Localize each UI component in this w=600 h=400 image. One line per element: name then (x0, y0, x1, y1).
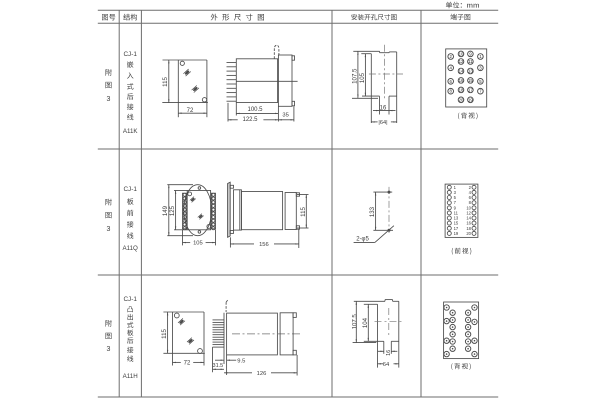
svg-text:A11Q: A11Q (123, 245, 139, 252)
svg-text:16: 16 (459, 78, 464, 83)
svg-text:19: 19 (454, 231, 459, 236)
svg-text:125: 125 (169, 205, 176, 216)
svg-text:17: 17 (468, 87, 473, 92)
svg-text:105: 105 (359, 72, 366, 83)
svg-text:15: 15 (468, 78, 473, 83)
svg-text:A11H: A11H (123, 373, 138, 380)
svg-text:64: 64 (383, 362, 390, 368)
svg-text:A11K: A11K (123, 128, 139, 135)
svg-text:11: 11 (468, 59, 473, 64)
svg-text:107.5: 107.5 (351, 314, 358, 330)
svg-text:72: 72 (184, 361, 191, 367)
svg-text:156: 156 (259, 242, 269, 248)
svg-text:9.5: 9.5 (237, 358, 245, 364)
svg-text:12: 12 (459, 59, 464, 64)
svg-text:104: 104 (362, 317, 369, 328)
svg-text:18: 18 (459, 87, 464, 92)
svg-text:3: 3 (107, 96, 111, 103)
svg-text:19: 19 (468, 97, 473, 102)
svg-text:35: 35 (282, 113, 288, 119)
svg-text:115: 115 (161, 329, 168, 339)
svg-text:|64|: |64| (378, 120, 387, 126)
svg-text:107.5: 107.5 (352, 68, 359, 84)
svg-text:3: 3 (107, 346, 111, 353)
svg-text:72: 72 (187, 108, 194, 114)
svg-text:CJ-1: CJ-1 (123, 296, 137, 303)
svg-text:2-φ5: 2-φ5 (356, 237, 369, 243)
svg-text:20: 20 (459, 97, 464, 102)
svg-text:10: 10 (459, 51, 464, 56)
svg-text:13: 13 (468, 69, 473, 74)
svg-text:14: 14 (459, 69, 464, 74)
svg-text:105: 105 (193, 241, 203, 247)
svg-text:115: 115 (300, 207, 307, 217)
svg-text:CJ-1: CJ-1 (123, 186, 137, 193)
svg-text:100.5: 100.5 (247, 107, 263, 113)
svg-text:3: 3 (107, 226, 111, 233)
svg-text:16: 16 (386, 350, 392, 356)
svg-text:122.5: 122.5 (242, 117, 258, 123)
svg-text:20: 20 (466, 231, 471, 236)
svg-text:133: 133 (369, 206, 376, 217)
svg-text:31.5: 31.5 (213, 363, 224, 369)
svg-text:115: 115 (162, 77, 169, 87)
svg-text:CJ-1: CJ-1 (123, 51, 137, 58)
svg-text:16: 16 (380, 105, 387, 111)
svg-text:126: 126 (257, 371, 267, 377)
